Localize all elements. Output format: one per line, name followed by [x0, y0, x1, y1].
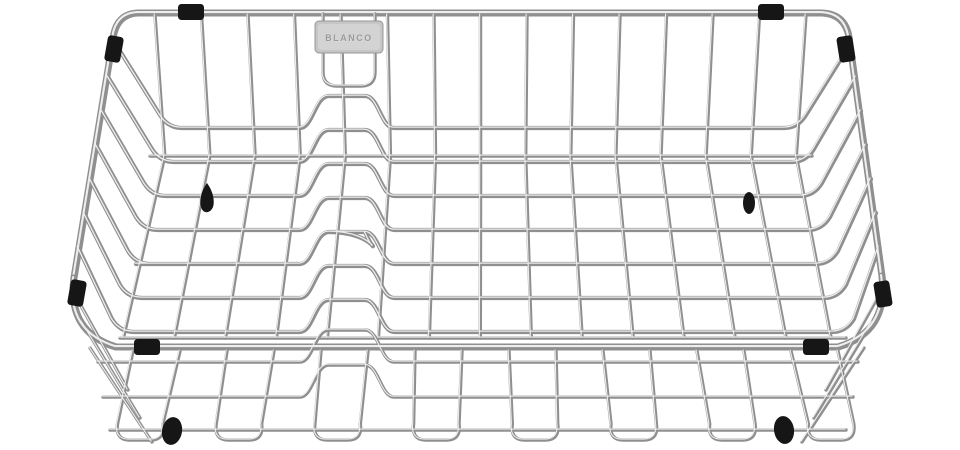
- clip-left-slope-bottom: [67, 279, 87, 307]
- clip-back-left: [178, 4, 204, 20]
- floor-long-wires: [123, 156, 831, 338]
- clip-left-slope-top: [104, 35, 124, 63]
- side-lower-wires: [75, 295, 879, 442]
- clip-front-right: [803, 339, 829, 355]
- rubber-foot-right: [772, 415, 796, 446]
- front-highlight-pass: [72, 13, 882, 441]
- product-photo-dish-drainer-basket: BLANCO BLANCO: [0, 0, 960, 450]
- clip-back-right: [758, 4, 784, 20]
- brand-badge-label: BLANCO: [325, 33, 373, 43]
- basket-illustration: BLANCO BLANCO: [0, 0, 960, 450]
- clip-front-left: [134, 339, 160, 355]
- brand-badge: BLANCO BLANCO: [315, 21, 383, 53]
- mounting-knob-right: [743, 192, 755, 214]
- clip-right-slope-bottom: [873, 280, 893, 308]
